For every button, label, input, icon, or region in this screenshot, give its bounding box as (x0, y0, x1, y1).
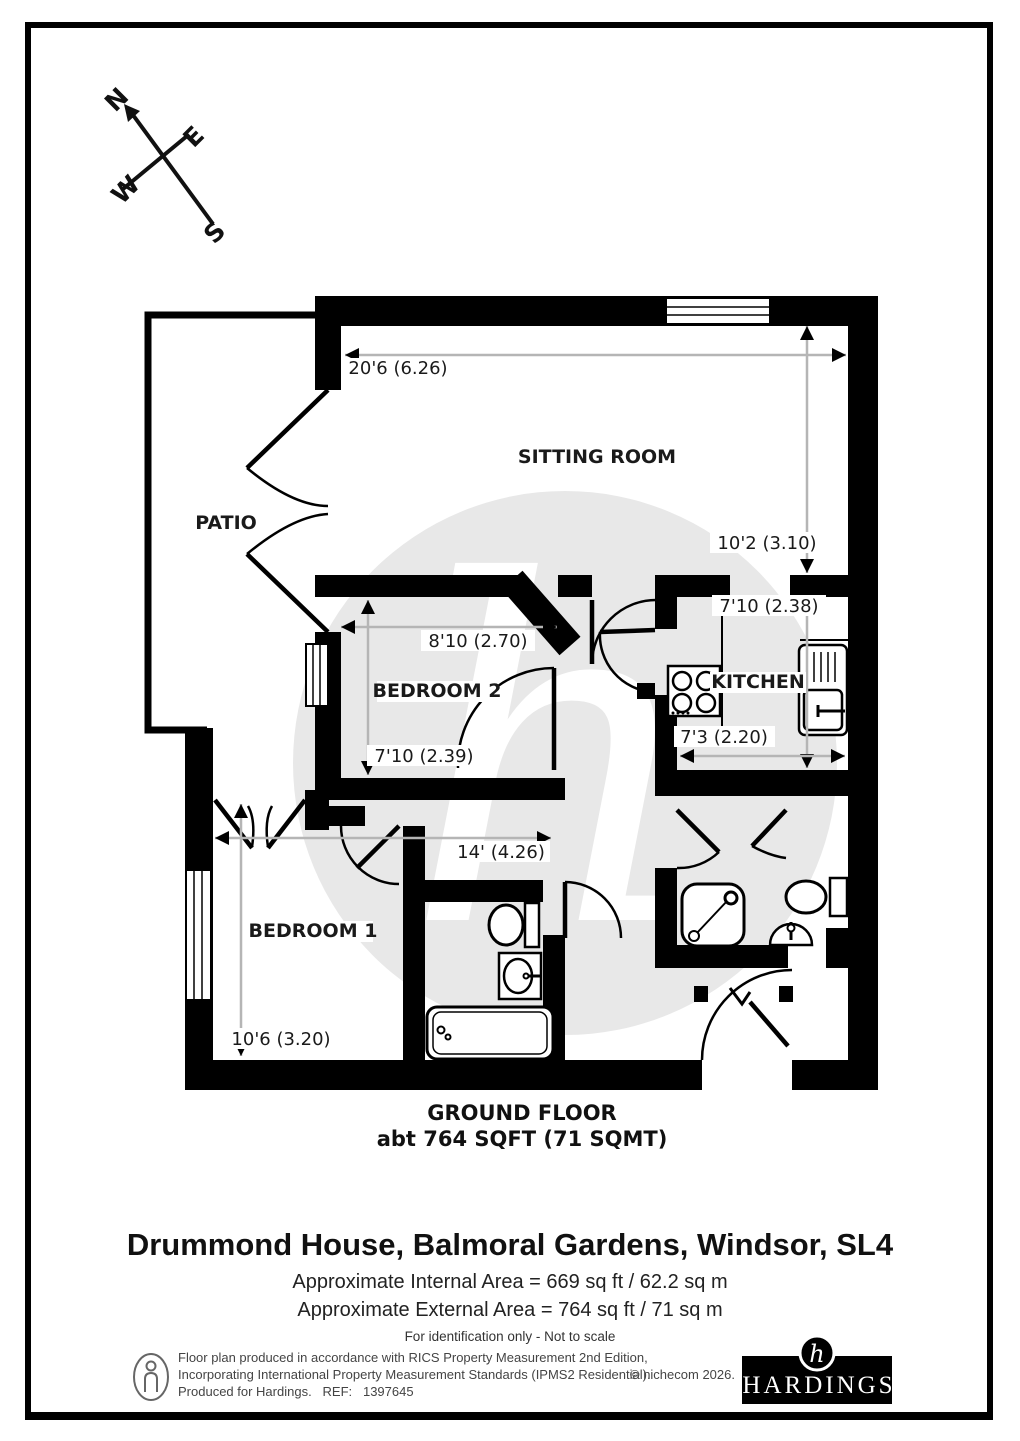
bathroom-toilet-icon (489, 903, 539, 947)
dim-sitting-width: 20'6 (6.26) (348, 358, 447, 379)
floorplan-page: N E W S h (0, 0, 1020, 1441)
person-scale-icon (134, 1354, 168, 1400)
compass-e: E (177, 120, 210, 153)
dim-kitchen-width: 7'3 (2.20) (680, 727, 768, 748)
room-label-sitting-room: SITTING ROOM (518, 446, 676, 468)
dim-bedroom2-depth: 7'10 (2.39) (374, 746, 473, 767)
dim-sitting-depth: 10'2 (3.10) (717, 533, 816, 554)
hardings-monogram: h (809, 1340, 824, 1368)
footer-copyright: © nichecom 2026. (630, 1367, 735, 1382)
property-address: Drummond House, Balmoral Gardens, Windso… (127, 1227, 894, 1262)
bedroom2-window (306, 644, 328, 706)
bathroom-basin-icon (499, 953, 541, 999)
room-label-bedroom2: BEDROOM 2 (373, 680, 502, 702)
footer-line1: Floor plan produced in accordance with R… (178, 1350, 648, 1365)
hardings-logo: h HARDINGS (742, 1336, 896, 1404)
bathtub-icon (427, 1007, 553, 1059)
footer-line3: Produced for Hardings. REF: 1397645 (178, 1384, 414, 1399)
dim-kitchen-depth: 7'10 (2.38) (719, 596, 818, 617)
footer-line2: Incorporating International Property Mea… (178, 1367, 651, 1382)
floor-summary: GROUND FLOOR abt 764 SQFT (71 SQMT) (377, 1101, 668, 1151)
hardings-wordmark: HARDINGS (742, 1372, 895, 1399)
shower-icon (682, 884, 744, 946)
footer: Floor plan produced in accordance with R… (134, 1336, 896, 1404)
dim-bedroom1-width: 14' (4.26) (457, 842, 545, 863)
room-label-bedroom1: BEDROOM 1 (249, 920, 378, 942)
room-label-kitchen: KITCHEN (711, 671, 804, 693)
floor-area: abt 764 SQFT (71 SQMT) (377, 1127, 668, 1151)
disclaimer: For identification only - Not to scale (405, 1329, 616, 1344)
room-label-patio: PATIO (195, 512, 257, 534)
dim-bedroom2-width: 8'10 (2.70) (428, 631, 527, 652)
external-area: Approximate External Area = 764 sq ft / … (297, 1299, 722, 1321)
sitting-room-window (666, 298, 770, 324)
title-block: Drummond House, Balmoral Gardens, Windso… (127, 1227, 894, 1344)
bedroom1-window (186, 870, 211, 1000)
compass-rose: N E W S (99, 82, 231, 249)
internal-area: Approximate Internal Area = 669 sq ft / … (292, 1271, 727, 1293)
shower-room-toilet-icon (786, 878, 847, 916)
floor-name: GROUND FLOOR (427, 1101, 616, 1125)
floorplan-canvas: N E W S h (0, 0, 1020, 1441)
compass-s: S (198, 216, 231, 249)
dim-bedroom1-depth: 10'6 (3.20) (231, 1029, 330, 1050)
